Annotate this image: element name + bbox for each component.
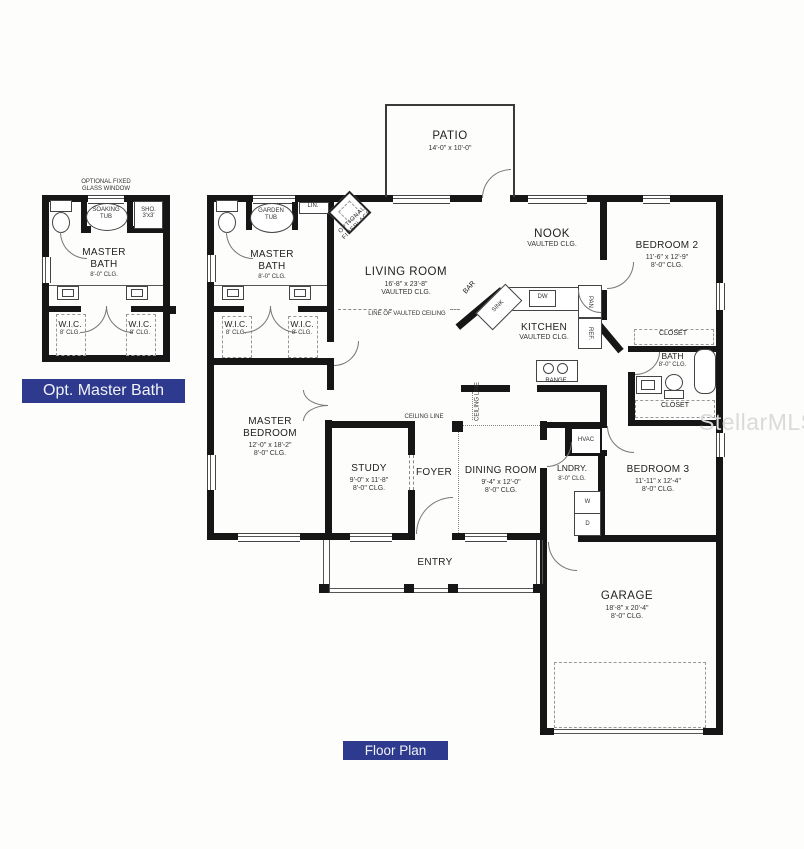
study-dims: 9'-0" x 11'-8" bbox=[344, 477, 394, 485]
wall bbox=[587, 195, 643, 202]
room-label-kitchen: KITCHEN VAULTED CLG. bbox=[504, 322, 584, 342]
washer: W bbox=[574, 491, 601, 514]
inset-bath-clg: 8'-0" CLG. bbox=[62, 272, 146, 279]
garage-dims: 18'-8" x 20'-4" bbox=[587, 605, 667, 613]
sink-basin bbox=[131, 289, 143, 297]
window bbox=[643, 195, 670, 204]
wall bbox=[214, 358, 334, 365]
window bbox=[528, 195, 587, 204]
kitchen-name: KITCHEN bbox=[504, 322, 584, 334]
living-dims: 16'-8" x 23'-8" bbox=[356, 281, 456, 289]
inset-wic-left-name: W.I.C. bbox=[53, 320, 87, 330]
room-label-laundry: LNDRY. 8'-0" CLG. bbox=[548, 464, 596, 483]
porch-line bbox=[329, 540, 330, 593]
porch-post bbox=[404, 584, 414, 593]
watermark: StellarMLS bbox=[699, 409, 804, 436]
sink-basin bbox=[62, 289, 74, 297]
vanity bbox=[50, 200, 72, 212]
bedroom2-dims: 11'-6" x 12'-9" bbox=[617, 254, 717, 262]
bath-clg: 8'-0" CLG. bbox=[650, 362, 695, 369]
post bbox=[452, 421, 463, 432]
wall bbox=[716, 457, 723, 735]
wall bbox=[450, 195, 482, 202]
wall bbox=[207, 282, 214, 455]
inset-wic-right-name: W.I.C. bbox=[123, 320, 157, 330]
bedroom2-name: BEDROOM 2 bbox=[617, 240, 717, 252]
master-bedroom-name2: BEDROOM bbox=[232, 428, 308, 440]
garden-tub-line2: TUB bbox=[249, 215, 293, 222]
room-label-master-bath: MASTER BATH 8'-0" CLG. bbox=[235, 249, 309, 281]
wall bbox=[207, 202, 214, 255]
laundry-clg: 8'-0" CLG. bbox=[548, 476, 596, 483]
wall bbox=[600, 202, 607, 260]
bedroom3-dims: 11'-11" x 12'-4" bbox=[608, 478, 708, 486]
island-sink-label: SINK bbox=[482, 290, 515, 323]
vaulted-ceiling-note: LINE OF VAULTED CEILING bbox=[352, 311, 462, 318]
window bbox=[238, 533, 300, 542]
porch-line bbox=[323, 588, 543, 589]
wall bbox=[600, 392, 607, 422]
soaking-tub-label: SOAKING TUB bbox=[84, 207, 128, 221]
room-label-study: STUDY 9'-0" x 11'-8" 8'-0" CLG. bbox=[344, 463, 394, 493]
room-label-nook: NOOK VAULTED CLG. bbox=[512, 228, 592, 249]
tub-line1: SOAKING bbox=[84, 207, 128, 214]
linen-text: LIN. bbox=[299, 203, 327, 210]
room-label-dining: DINING ROOM 9'-4" x 12'-0" 8'-0" CLG. bbox=[458, 465, 544, 495]
hvac-unit: HVAC bbox=[570, 427, 602, 455]
wall bbox=[628, 372, 635, 400]
dishwasher-label: DW bbox=[530, 294, 555, 300]
wall bbox=[327, 365, 334, 390]
garage-name: GARAGE bbox=[587, 590, 667, 603]
vanity bbox=[216, 200, 238, 212]
dining-clg: 8'-0" CLG. bbox=[458, 487, 544, 495]
window-note-line1: OPTIONAL FIXED bbox=[58, 179, 154, 186]
wall bbox=[325, 420, 332, 533]
closet-top-label: CLOSET bbox=[648, 330, 698, 338]
vaulted-ceiling-line bbox=[450, 309, 460, 310]
room-label-master-bedroom: MASTER BEDROOM 12'-0" x 18'-2" 8'-0" CLG… bbox=[232, 416, 308, 458]
toilet bbox=[665, 374, 683, 391]
room-label-inset-wic-left: W.I.C. 8' CLG. bbox=[53, 320, 87, 337]
hvac-label: HVAC bbox=[572, 437, 600, 443]
wall bbox=[716, 202, 723, 283]
door-arc bbox=[334, 341, 359, 366]
wall bbox=[578, 535, 723, 542]
master-bedroom-name1: MASTER bbox=[232, 416, 308, 428]
wall bbox=[537, 385, 607, 392]
garden-tub-label: GARDEN TUB bbox=[249, 208, 293, 222]
laundry-name: LNDRY. bbox=[548, 464, 596, 474]
room-label-bedroom3: BEDROOM 3 11'-11" x 12'-4" 8'-0" CLG. bbox=[608, 464, 708, 494]
floor-plan-image: SHO. 3'x3' SOAKING TUB OPTIONAL FIXED GL… bbox=[0, 0, 804, 849]
garage-door-line bbox=[554, 733, 703, 734]
room-label-wic-right: W.I.C. 8' CLG. bbox=[285, 320, 319, 337]
burner bbox=[557, 363, 568, 374]
closet-bottom-label: CLOSET bbox=[650, 402, 700, 410]
garage-door-dashed bbox=[554, 662, 706, 728]
wall bbox=[452, 533, 465, 540]
ceiling-dashed-line bbox=[472, 392, 473, 420]
wall bbox=[300, 533, 350, 540]
toilet bbox=[52, 212, 70, 233]
window bbox=[393, 195, 450, 204]
patio-wall bbox=[513, 104, 515, 197]
wall bbox=[332, 421, 415, 428]
porch-line bbox=[323, 592, 543, 593]
wall bbox=[214, 306, 244, 312]
patio-name: PATIO bbox=[410, 130, 490, 143]
living-name: LIVING ROOM bbox=[356, 266, 456, 279]
wall bbox=[298, 306, 327, 312]
kitchen-clg: VAULTED CLG. bbox=[504, 334, 584, 342]
wall bbox=[670, 195, 723, 202]
opening-dashed bbox=[409, 455, 410, 490]
washer-label: W bbox=[575, 499, 600, 505]
master-bath-clg: 8'-0" CLG. bbox=[235, 274, 309, 281]
window bbox=[716, 433, 725, 457]
wall bbox=[461, 385, 510, 392]
wall bbox=[131, 306, 163, 312]
wall bbox=[49, 306, 81, 312]
wall bbox=[547, 422, 565, 428]
range-label: RANGE bbox=[528, 378, 584, 385]
wall bbox=[168, 306, 176, 314]
inset-bath-name1: MASTER bbox=[62, 247, 146, 259]
toilet bbox=[218, 212, 236, 233]
foyer-name: FOYER bbox=[412, 467, 456, 479]
room-label-inset-wic-right: W.I.C. 8' CLG. bbox=[123, 320, 157, 337]
window bbox=[207, 255, 216, 282]
dining-dims: 9'-4" x 12'-0" bbox=[458, 479, 544, 487]
dining-name: DINING ROOM bbox=[458, 465, 544, 477]
vaulted-ceiling-line bbox=[338, 309, 392, 310]
room-label-bedroom2: BEDROOM 2 11'-6" x 12'-9" 8'-0" CLG. bbox=[617, 240, 717, 270]
window bbox=[207, 455, 216, 490]
room-label-bath: BATH 8'-0" CLG. bbox=[650, 352, 695, 369]
ceiling-line-label-v: CEILING LINE bbox=[475, 373, 482, 429]
door-arc bbox=[607, 426, 634, 453]
bar-label: BAR bbox=[457, 274, 483, 302]
plan-caption: Floor Plan bbox=[343, 741, 448, 760]
garage-clg: 8'-0" CLG. bbox=[587, 613, 667, 621]
inset-wic-right-clg: 8' CLG. bbox=[123, 330, 157, 337]
master-bedroom-clg: 8'-0" CLG. bbox=[232, 450, 308, 458]
toilet-tank bbox=[664, 390, 684, 399]
sink-basin bbox=[641, 380, 655, 390]
wic-right-clg: 8' CLG. bbox=[285, 330, 319, 337]
wic-left-clg: 8' CLG. bbox=[219, 330, 253, 337]
room-label-living: LIVING ROOM 16'-8" x 23'-8" VAULTED CLG. bbox=[356, 266, 456, 297]
wall bbox=[392, 533, 415, 540]
room-label-inset-master-bath: MASTER BATH 8'-0" CLG. bbox=[62, 247, 146, 279]
window-note: OPTIONAL FIXED GLASS WINDOW bbox=[58, 179, 154, 193]
door-arc bbox=[548, 542, 577, 571]
linen-label: LIN. bbox=[299, 203, 327, 210]
wall bbox=[207, 533, 238, 540]
window bbox=[465, 533, 507, 542]
shower-stall: SHO. 3'x3' bbox=[134, 201, 163, 229]
bedroom3-name: BEDROOM 3 bbox=[608, 464, 708, 476]
study-name: STUDY bbox=[344, 463, 394, 475]
master-bath-name1: MASTER bbox=[235, 249, 309, 261]
bedroom3-clg: 8'-0" CLG. bbox=[608, 486, 708, 494]
wall bbox=[408, 490, 415, 533]
living-clg: VAULTED CLG. bbox=[356, 289, 456, 297]
room-label-wic-left: W.I.C. 8' CLG. bbox=[219, 320, 253, 337]
post bbox=[540, 421, 547, 429]
door-arc bbox=[416, 497, 453, 534]
porch-post bbox=[319, 584, 329, 593]
wall bbox=[163, 195, 170, 362]
tub-line2: TUB bbox=[84, 214, 128, 221]
bedroom2-clg: 8'-0" CLG. bbox=[617, 262, 717, 270]
dishwasher: DW bbox=[529, 290, 556, 307]
door-arc bbox=[303, 390, 328, 406]
room-label-patio: PATIO 14'-0" x 10'-0" bbox=[410, 130, 490, 153]
burner bbox=[543, 363, 554, 374]
wall bbox=[42, 355, 170, 362]
wall bbox=[703, 728, 723, 735]
garden-tub-line1: GARDEN bbox=[249, 208, 293, 215]
inset-caption: Opt. Master Bath bbox=[22, 379, 185, 403]
master-bath-name2: BATH bbox=[235, 261, 309, 273]
master-bedroom-dims: 12'-0" x 18'-2" bbox=[232, 442, 308, 450]
wall bbox=[42, 202, 49, 257]
wall bbox=[408, 428, 415, 455]
window-note-line2: GLASS WINDOW bbox=[58, 186, 154, 193]
nook-name: NOOK bbox=[512, 228, 592, 241]
room-label-garage: GARAGE 18'-8" x 20'-4" 8'-0" CLG. bbox=[587, 590, 667, 621]
inset-wic-left-clg: 8' CLG. bbox=[53, 330, 87, 337]
wall bbox=[327, 202, 334, 342]
bath-name: BATH bbox=[650, 352, 695, 362]
shower-size: 3'x3' bbox=[135, 213, 162, 219]
bathtub bbox=[694, 349, 716, 394]
sink-basin bbox=[294, 289, 306, 297]
dryer-label: D bbox=[575, 521, 600, 527]
porch-post bbox=[533, 584, 543, 593]
study-clg: 8'-0" CLG. bbox=[344, 485, 394, 493]
garage-door-line bbox=[554, 729, 703, 730]
door-arc bbox=[482, 169, 511, 198]
wic-right-name: W.I.C. bbox=[285, 320, 319, 330]
room-label-foyer: FOYER bbox=[412, 467, 456, 479]
room-label-entry: ENTRY bbox=[405, 557, 465, 569]
inset-bath-name2: BATH bbox=[62, 259, 146, 271]
window bbox=[42, 257, 51, 283]
patio-dims: 14'-0" x 10'-0" bbox=[410, 145, 490, 153]
wall bbox=[42, 283, 49, 362]
dryer: D bbox=[574, 513, 601, 536]
window bbox=[350, 533, 392, 542]
refrigerator-label: REF. bbox=[587, 327, 593, 340]
ceiling-line-label-h: CEILING LINE bbox=[396, 414, 452, 421]
porch-post bbox=[448, 584, 458, 593]
patio-wall bbox=[385, 104, 387, 197]
nook-clg: VAULTED CLG. bbox=[512, 241, 592, 249]
patio-wall bbox=[385, 104, 515, 106]
wic-left-name: W.I.C. bbox=[219, 320, 253, 330]
sink-basin bbox=[227, 289, 239, 297]
entry-name: ENTRY bbox=[405, 557, 465, 569]
window bbox=[716, 283, 725, 310]
